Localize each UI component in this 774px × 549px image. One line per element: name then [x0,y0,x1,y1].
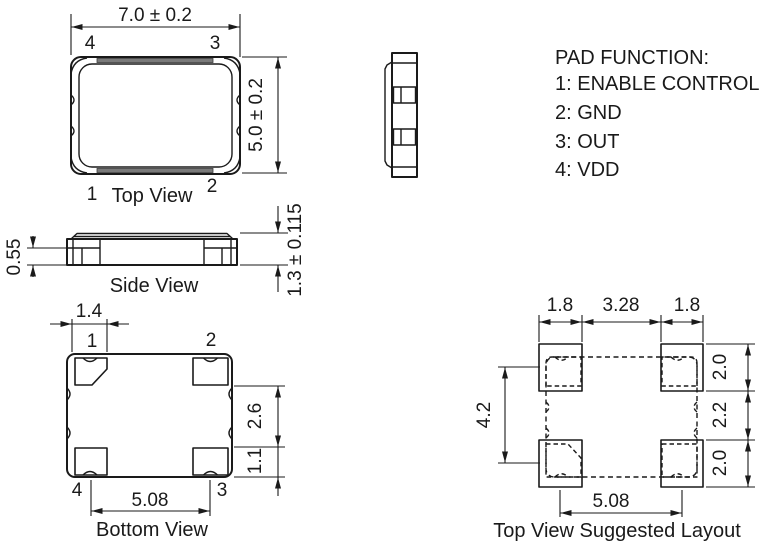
bottom-view-pin-4: 4 [72,480,83,501]
pad-function-item-3: 3: OUT [555,131,619,153]
layout-pad-height-bottom-dim: 2.0 [710,450,731,476]
side-view-body [67,239,237,265]
side-view-pad-height-dim: 0.55 [4,239,25,276]
bottom-view-label: Bottom View [96,519,208,541]
pad-function-item-2: 2: GND [555,102,622,124]
layout-pad-width-right-dim: 1.8 [674,295,700,316]
pad-function-item-4: 4: VDD [555,159,619,181]
bottom-view-pitch-dim: 5.08 [132,490,169,511]
layout-gap-v-dim: 2.2 [710,402,731,428]
lid-seam-strip-top [97,59,213,63]
top-view-pin-3: 3 [210,33,221,54]
pad-function-item-1: 1: ENABLE CONTROL [555,73,760,95]
bottom-view-pad-gap-dim: 2.6 [245,403,266,429]
top-view-pin-4: 4 [85,33,96,54]
top-view-label: Top View [112,185,193,207]
package-body-outline [71,57,240,174]
bottom-view-pad-height-dim: 1.1 [245,448,266,474]
bottom-view-pin-1: 1 [87,331,98,352]
dimension-drawing-page: 7.0 ± 0.2 5.0 ± 0.2 4 3 1 2 Top View PAD… [0,0,774,549]
top-view-height-dim: 5.0 ± 0.2 [246,78,267,152]
layout-span-v-dim: 4.2 [474,402,495,428]
layout-view-label: Top View Suggested Layout [493,520,741,542]
bottom-view-pad-width-dim: 1.4 [76,301,103,322]
top-view-pin-1: 1 [87,184,98,205]
bottom-view-pin-2: 2 [206,330,217,351]
top-view-pin-2: 2 [207,176,218,197]
bottom-view-pin-3: 3 [217,480,228,501]
layout-pad-height-top-dim: 2.0 [710,354,731,380]
end-view-body [392,53,417,177]
side-view-total-height-dim: 1.3 ± 0.115 [285,203,306,297]
lid-seam-strip-bottom [97,169,213,173]
pad-function-title: PAD FUNCTION: [555,47,709,69]
layout-pad-width-left-dim: 1.8 [547,295,573,316]
side-view-label: Side View [110,275,199,297]
layout-pitch-dim: 5.08 [593,491,630,512]
drawing-canvas: 7.0 ± 0.2 5.0 ± 0.2 4 3 1 2 Top View PAD… [0,0,774,549]
layout-gap-h-dim: 3.28 [603,295,640,316]
top-view-width-dim: 7.0 ± 0.2 [118,5,192,26]
